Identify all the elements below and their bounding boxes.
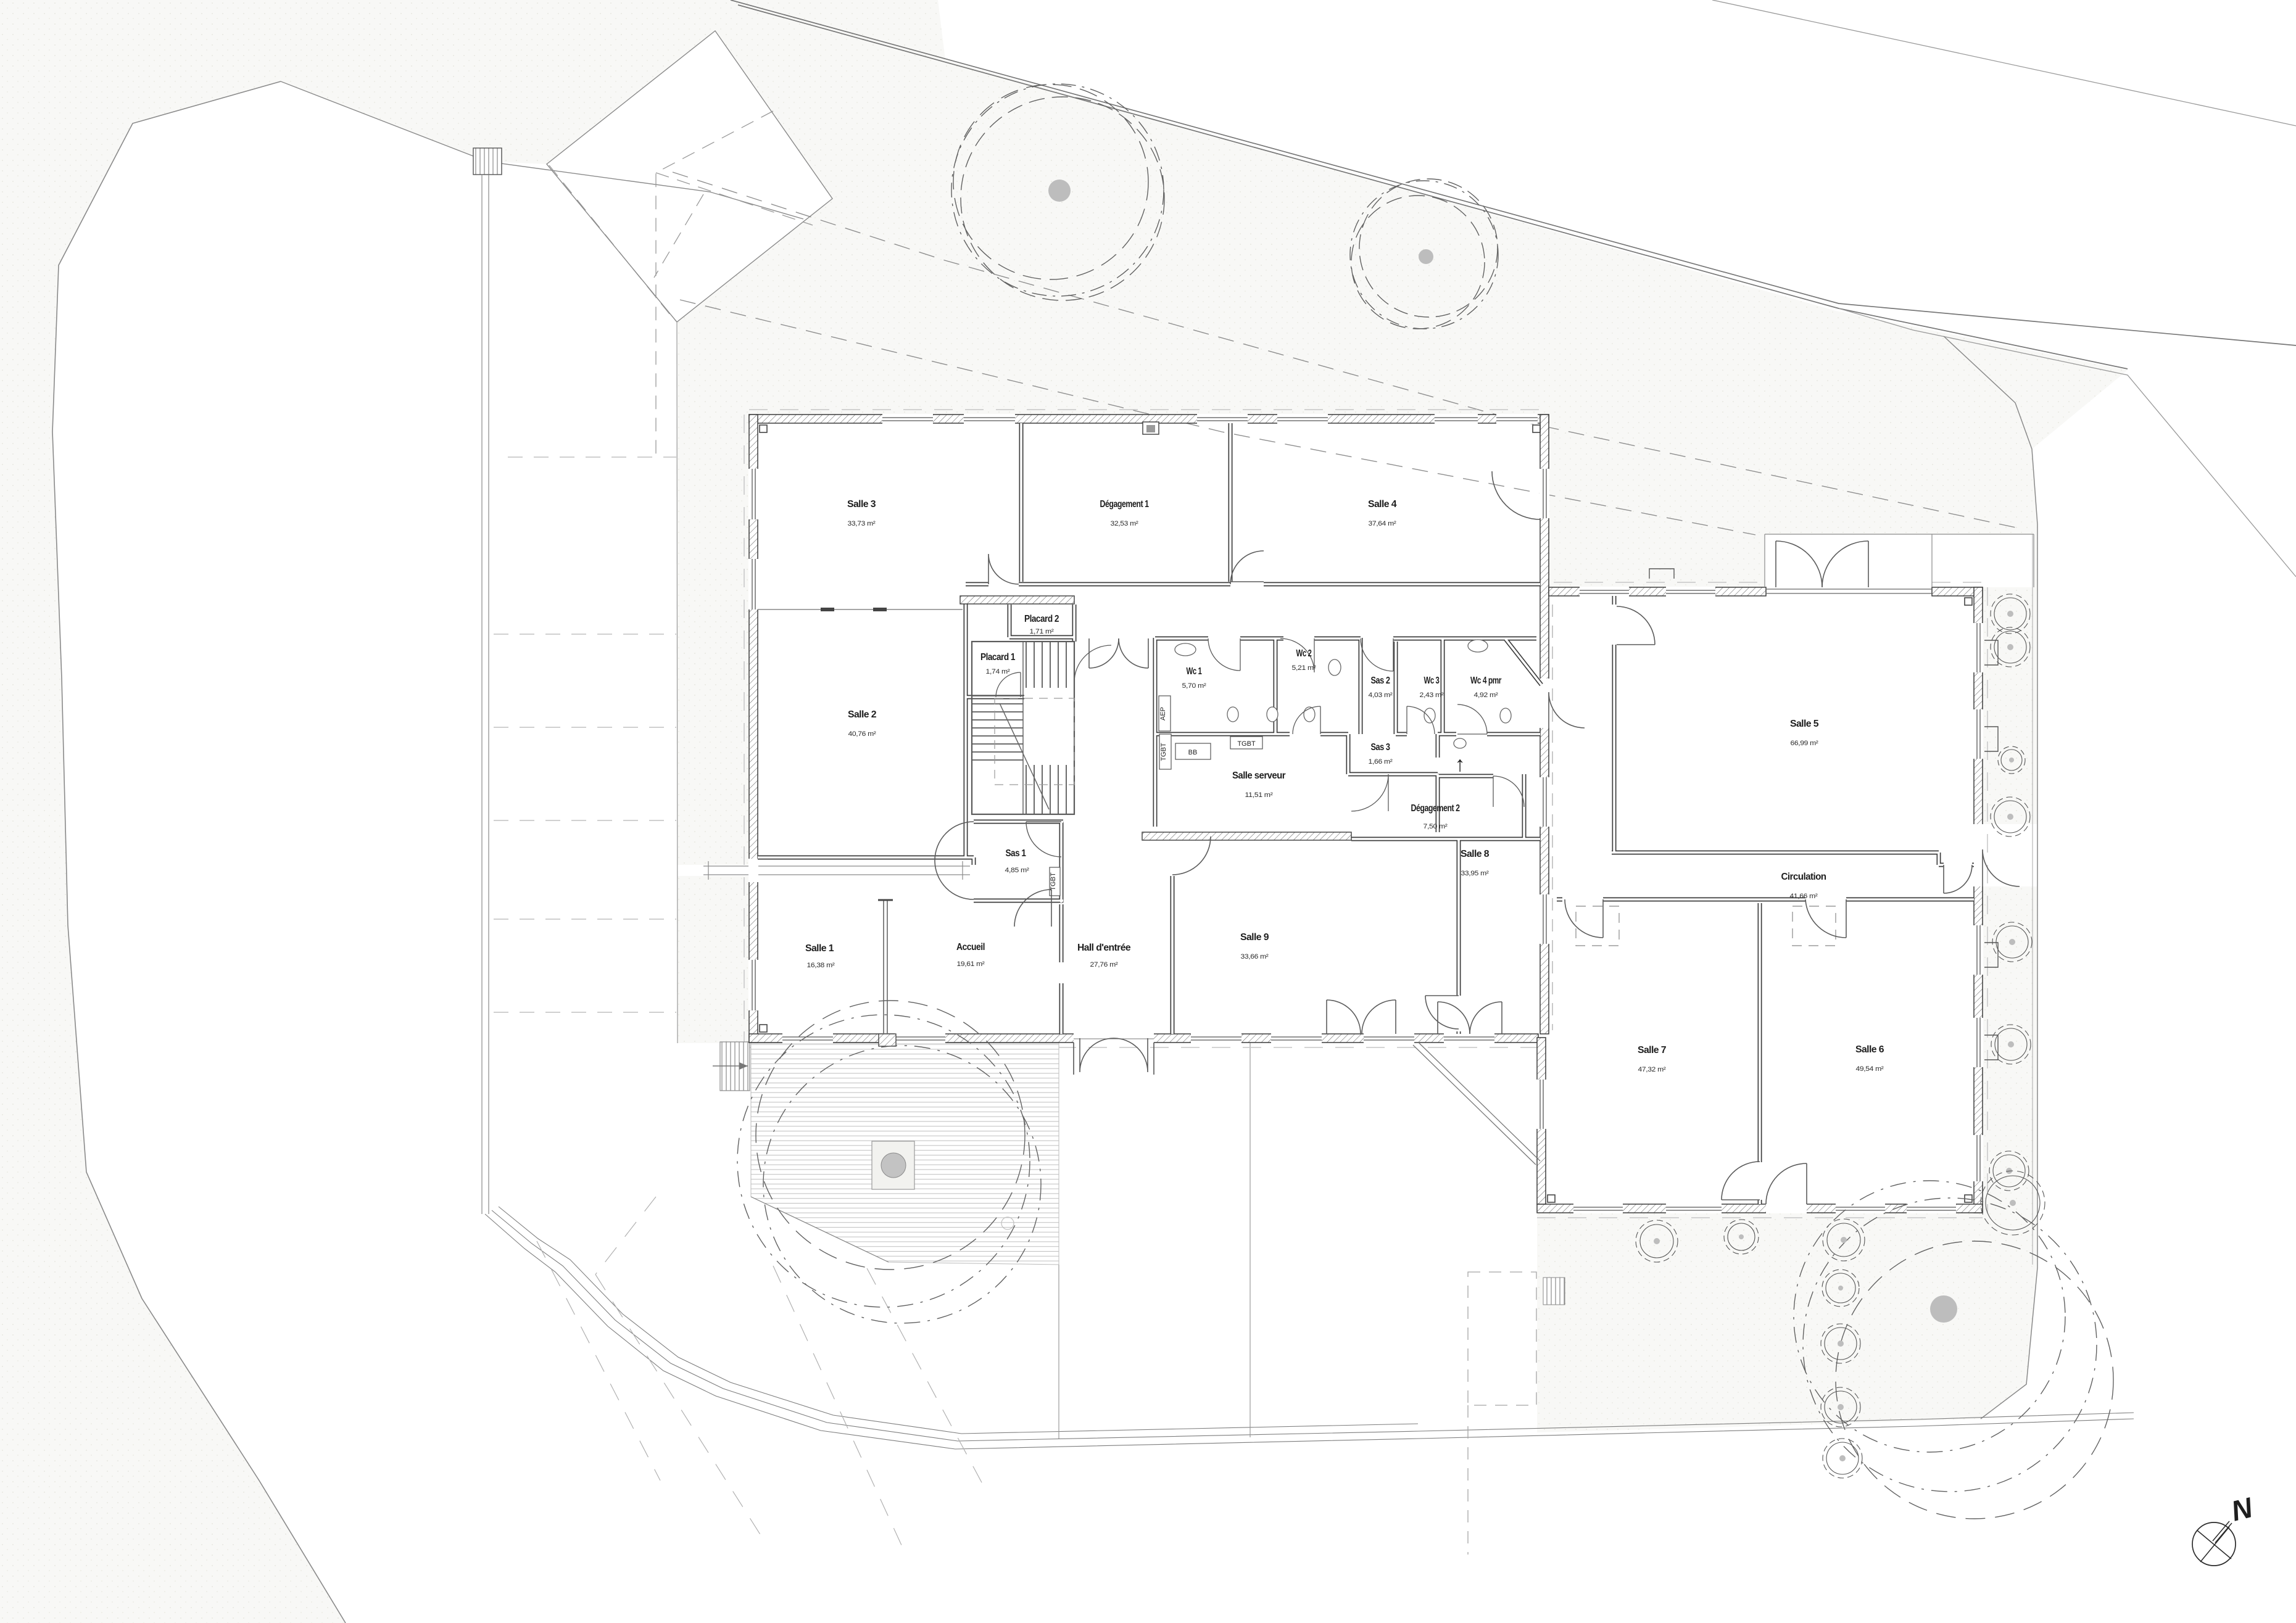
svg-text:47,32 m²: 47,32 m² <box>1638 1066 1667 1073</box>
svg-text:66,99 m²: 66,99 m² <box>1791 740 1819 747</box>
svg-text:Salle 6: Salle 6 <box>1855 1044 1884 1055</box>
svg-text:TGBT: TGBT <box>1237 740 1256 748</box>
svg-text:37,64 m²: 37,64 m² <box>1369 520 1397 527</box>
svg-text:1,66 m²: 1,66 m² <box>1369 758 1393 766</box>
svg-text:1,74 m²: 1,74 m² <box>986 668 1011 675</box>
svg-text:Salle 2: Salle 2 <box>848 709 877 720</box>
svg-text:TGBT: TGBT <box>1050 872 1057 891</box>
svg-text:Accueil: Accueil <box>956 942 985 952</box>
svg-text:4,03 m²: 4,03 m² <box>1369 692 1393 699</box>
svg-text:Salle serveur: Salle serveur <box>1232 770 1285 781</box>
svg-text:Hall d'entrée: Hall d'entrée <box>1077 943 1131 953</box>
svg-text:4,85 m²: 4,85 m² <box>1005 867 1030 874</box>
svg-text:↑: ↑ <box>1455 753 1465 776</box>
svg-text:Salle 5: Salle 5 <box>1790 719 1819 729</box>
svg-text:33,95 m²: 33,95 m² <box>1461 870 1490 877</box>
svg-text:Salle 8: Salle 8 <box>1461 849 1490 859</box>
svg-text:33,66 m²: 33,66 m² <box>1241 953 1269 960</box>
svg-text:Salle 7: Salle 7 <box>1638 1045 1667 1055</box>
svg-text:Circulation: Circulation <box>1781 872 1826 882</box>
svg-text:19,61 m²: 19,61 m² <box>957 960 985 968</box>
svg-text:40,76 m²: 40,76 m² <box>848 730 877 738</box>
svg-text:11,51 m²: 11,51 m² <box>1245 791 1274 799</box>
svg-text:27,76 m²: 27,76 m² <box>1090 961 1119 968</box>
svg-text:49,54 m²: 49,54 m² <box>1856 1065 1884 1073</box>
svg-text:4,92 m²: 4,92 m² <box>1474 692 1499 699</box>
svg-text:33,73 m²: 33,73 m² <box>848 520 876 527</box>
svg-text:32,53 m²: 32,53 m² <box>1111 520 1139 527</box>
svg-text:Placard 2: Placard 2 <box>1024 614 1059 624</box>
svg-text:5,70 m²: 5,70 m² <box>1182 682 1207 690</box>
svg-text:7,50 m²: 7,50 m² <box>1424 823 1448 830</box>
svg-text:41,66 m²: 41,66 m² <box>1790 893 1818 900</box>
svg-text:Dégagement 1: Dégagement 1 <box>1100 499 1150 510</box>
svg-text:TGBT: TGBT <box>1160 743 1167 761</box>
svg-text:Wc 2: Wc 2 <box>1296 648 1312 659</box>
svg-text:Wc 4 pmr: Wc 4 pmr <box>1470 675 1501 686</box>
svg-text:AEP: AEP <box>1159 707 1167 721</box>
svg-text:BB: BB <box>1188 749 1198 756</box>
svg-text:Salle 9: Salle 9 <box>1240 932 1269 943</box>
svg-text:16,38 m²: 16,38 m² <box>807 962 835 969</box>
svg-text:Salle 1: Salle 1 <box>805 943 834 954</box>
svg-text:Sas 2: Sas 2 <box>1371 675 1391 686</box>
svg-text:Salle 3: Salle 3 <box>847 499 876 510</box>
svg-text:Wc 3: Wc 3 <box>1424 675 1440 686</box>
svg-text:Placard 1: Placard 1 <box>980 652 1016 663</box>
svg-text:Sas 1: Sas 1 <box>1006 848 1027 859</box>
svg-text:2,43 m²: 2,43 m² <box>1420 692 1444 699</box>
svg-text:Wc 1: Wc 1 <box>1187 666 1202 677</box>
svg-text:5,21 m²: 5,21 m² <box>1292 664 1317 672</box>
svg-text:Salle 4: Salle 4 <box>1368 499 1397 510</box>
svg-text:Sas 3: Sas 3 <box>1371 742 1391 753</box>
svg-text:Dégagement 2: Dégagement 2 <box>1411 803 1461 814</box>
svg-text:1,71 m²: 1,71 m² <box>1030 628 1055 635</box>
